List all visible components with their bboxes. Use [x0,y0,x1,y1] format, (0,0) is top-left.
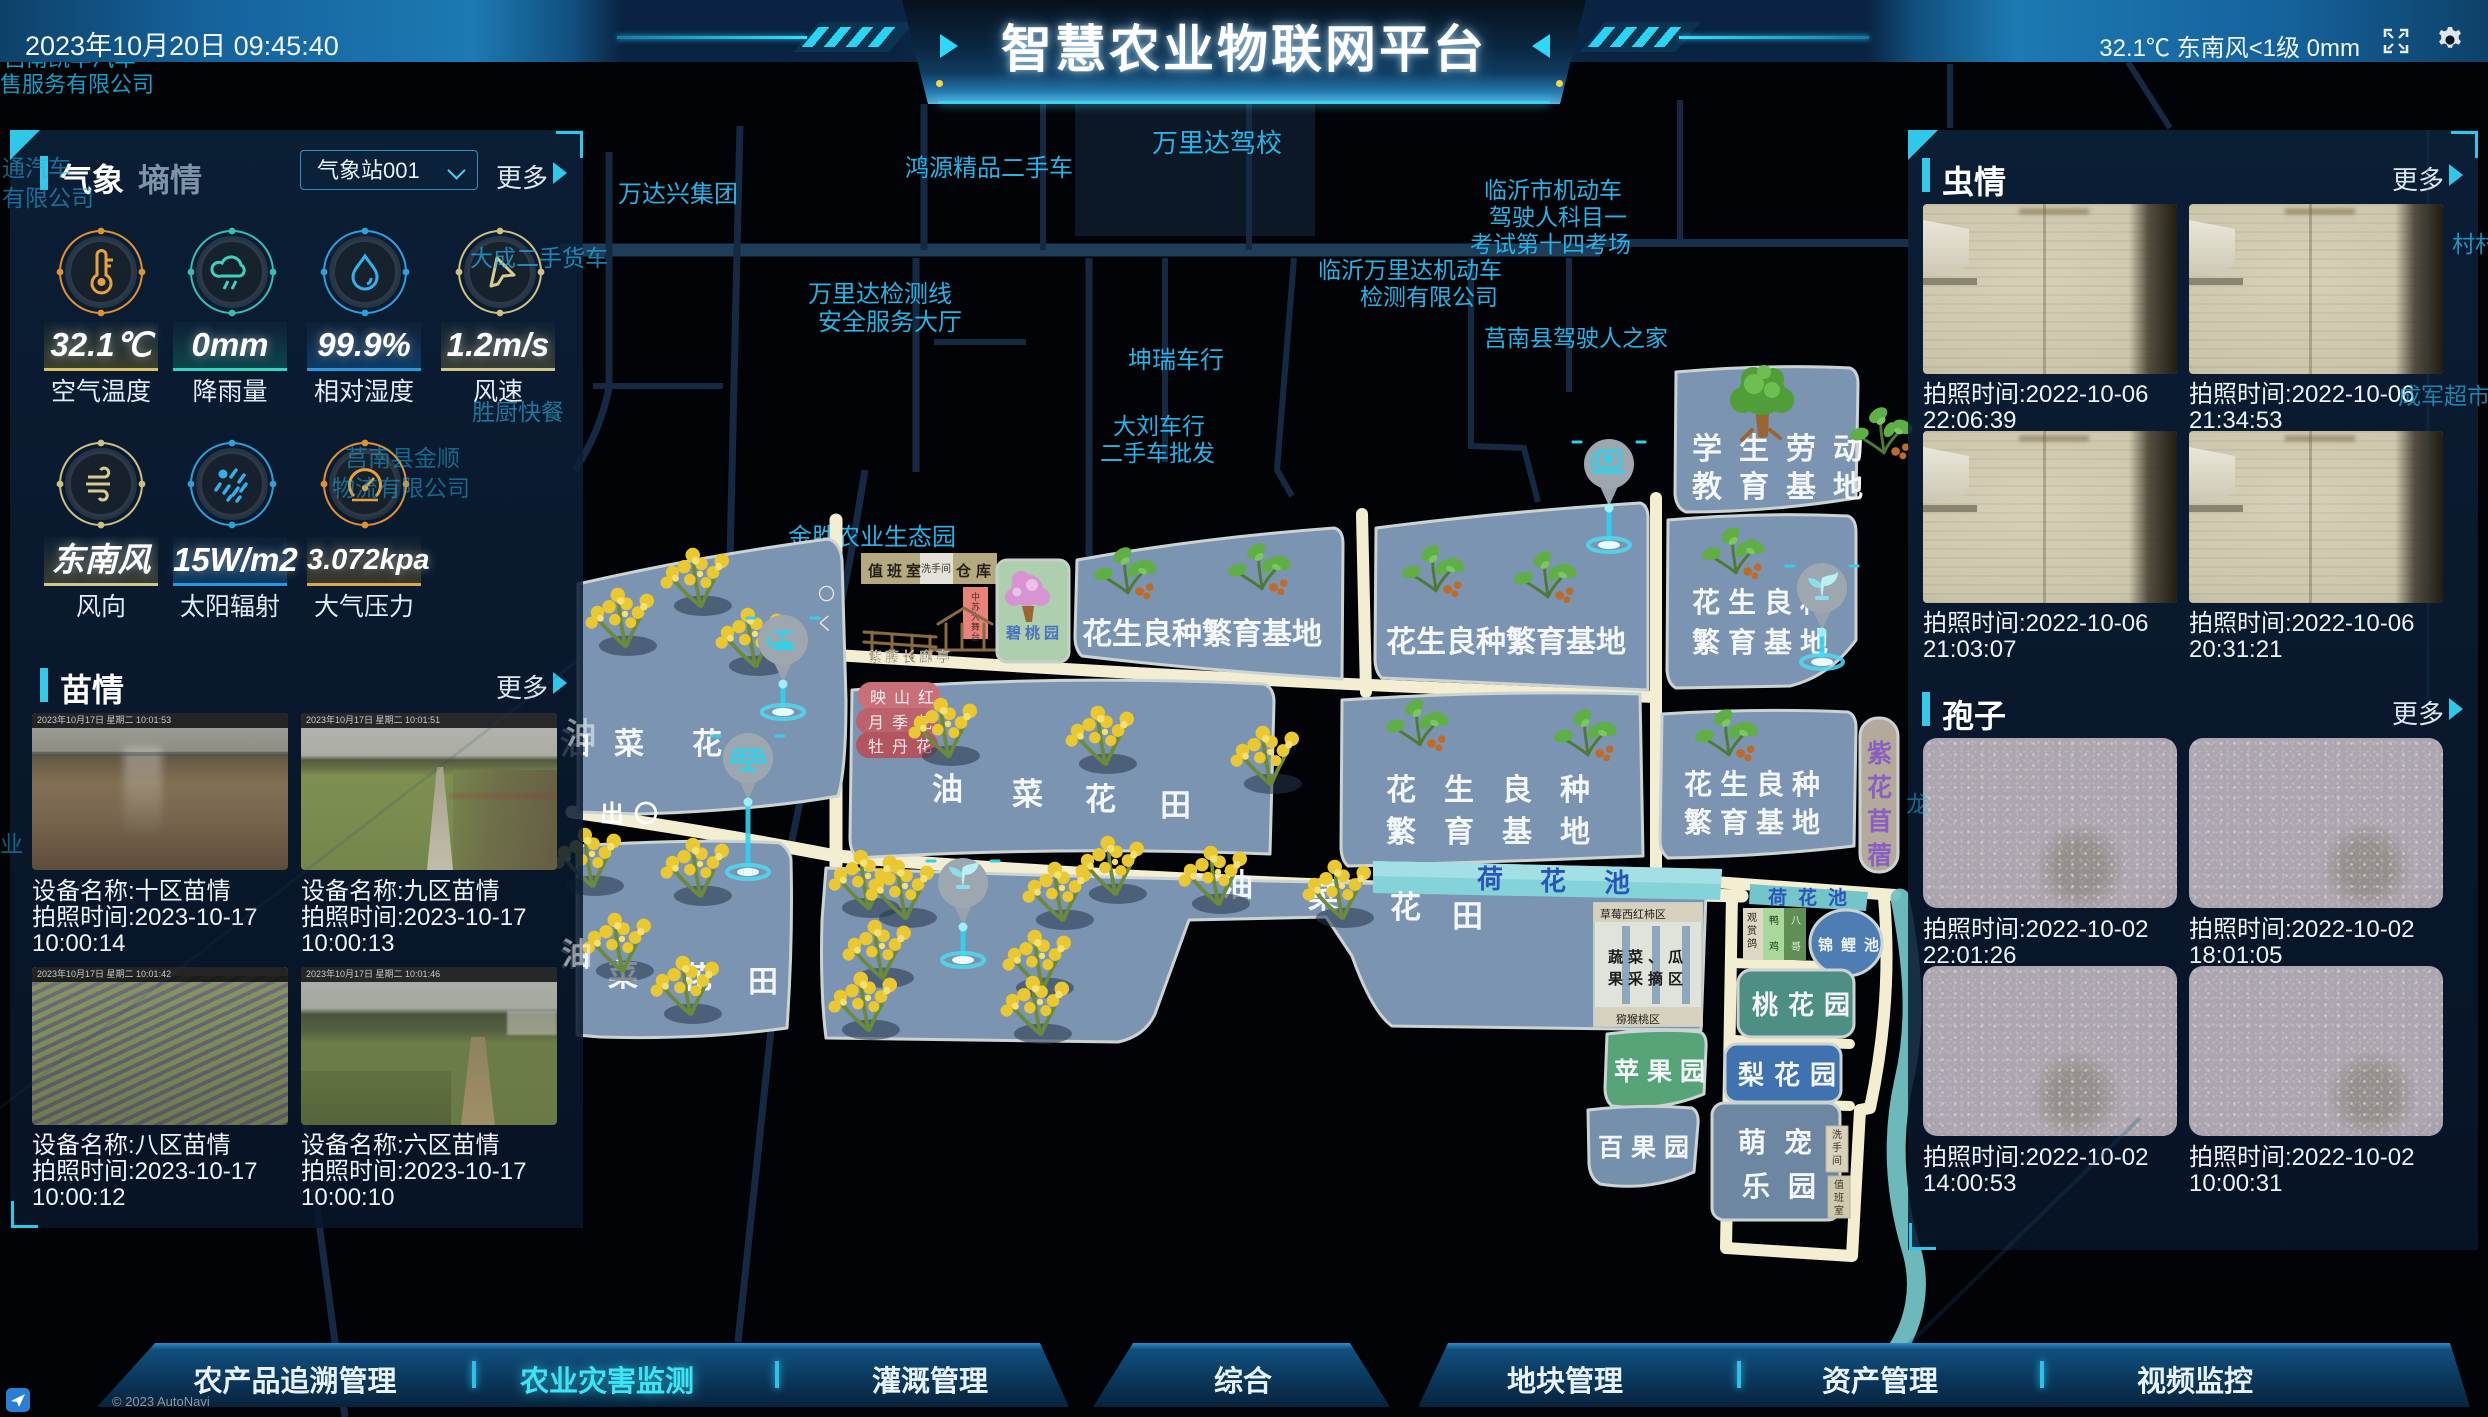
svg-text:通汽车: 通汽车 [2,155,71,181]
svg-text:大成二手货车: 大成二手货车 [470,245,608,271]
svg-text:油: 油 [562,938,592,971]
svg-text:油: 油 [566,718,596,751]
svg-text:胜厨快餐: 胜厨快餐 [472,399,564,425]
svg-text:业: 业 [0,831,23,857]
svg-text:龙: 龙 [1906,791,1929,817]
svg-text:成军超市: 成军超市 [2398,383,2488,409]
svg-text:有限公司: 有限公司 [2,185,94,211]
svg-text:莒南县金顺: 莒南县金顺 [345,445,460,471]
svg-text:村村: 村村 [2452,231,2488,257]
svg-text:物流有限公司: 物流有限公司 [332,475,470,501]
